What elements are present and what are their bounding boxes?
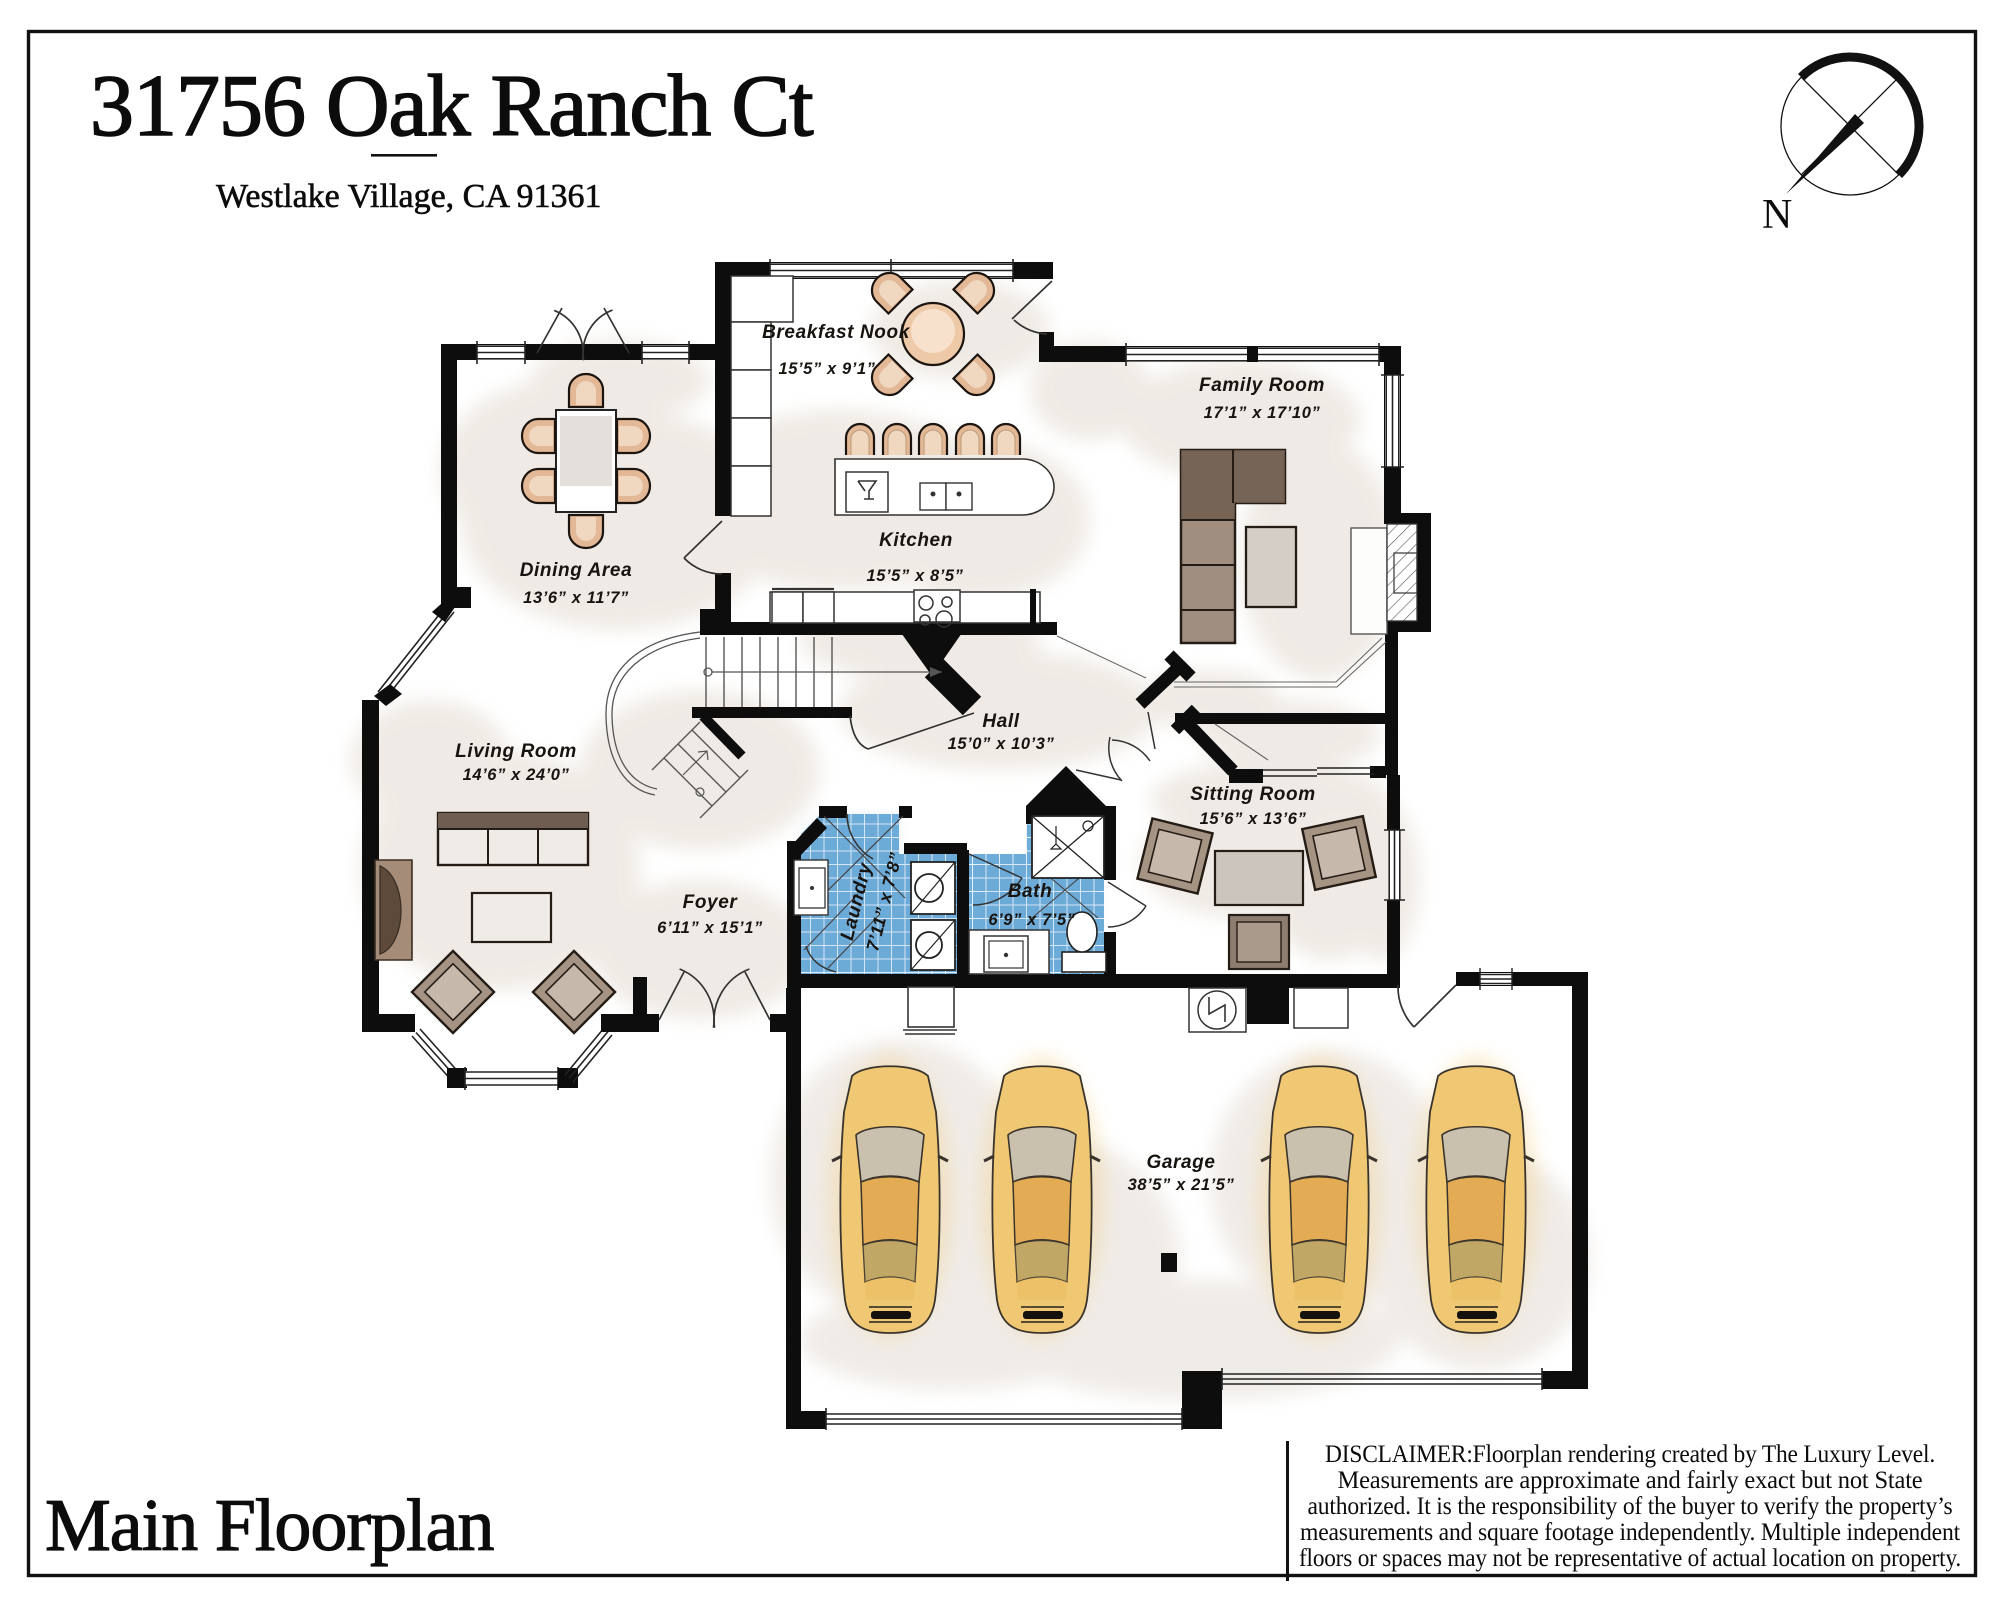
- svg-text:14’6” x 24’0”: 14’6” x 24’0”: [463, 766, 570, 784]
- svg-text:38’5” x 21’5”: 38’5” x 21’5”: [1128, 1176, 1235, 1194]
- svg-text:17’1” x 17’10”: 17’1” x 17’10”: [1204, 404, 1321, 422]
- svg-text:Westlake Village, CA 91361: Westlake Village, CA 91361: [216, 178, 602, 215]
- svg-text:15’0” x 10’3”: 15’0” x 10’3”: [948, 735, 1055, 753]
- svg-text:15’5” x 8’5”: 15’5” x 8’5”: [866, 567, 963, 585]
- svg-text:DISCLAIMER:Floorplan rendering: DISCLAIMER:Floorplan rendering created b…: [1325, 1439, 1935, 1468]
- svg-text:authorized. It is the responsi: authorized. It is the responsibility of …: [1308, 1491, 1953, 1520]
- svg-text:Measurements are approximate a: Measurements are approximate and fairly …: [1338, 1465, 1923, 1494]
- svg-text:Breakfast Nook: Breakfast Nook: [762, 322, 911, 343]
- svg-text:6’11” x 15’1”: 6’11” x 15’1”: [657, 919, 763, 937]
- svg-text:Kitchen: Kitchen: [879, 530, 953, 551]
- svg-text:Hall: Hall: [982, 711, 1019, 732]
- svg-text:6’9” x 7’5”: 6’9” x 7’5”: [988, 911, 1075, 929]
- svg-text:Main Floorplan: Main Floorplan: [45, 1485, 493, 1567]
- svg-text:Foyer: Foyer: [683, 892, 739, 913]
- svg-text:Living Room: Living Room: [455, 741, 577, 762]
- svg-text:Sitting Room: Sitting Room: [1190, 784, 1315, 805]
- svg-text:13’6” x 11’7”: 13’6” x 11’7”: [523, 589, 629, 607]
- svg-text:15’6” x 13’6”: 15’6” x 13’6”: [1200, 810, 1307, 828]
- svg-text:15’5” x 9’1”: 15’5” x 9’1”: [778, 360, 875, 378]
- svg-text:floors or spaces may not be re: floors or spaces may not be representati…: [1299, 1543, 1961, 1572]
- svg-text:Dining Area: Dining Area: [520, 560, 633, 581]
- svg-text:measurements and square footag: measurements and square footage independ…: [1300, 1517, 1960, 1546]
- svg-text:31756 Oak Ranch Ct: 31756 Oak Ranch Ct: [90, 58, 813, 155]
- svg-text:Garage: Garage: [1146, 1152, 1215, 1173]
- svg-text:Bath: Bath: [1008, 881, 1053, 902]
- svg-text:N: N: [1762, 192, 1792, 238]
- svg-text:Family Room: Family Room: [1199, 375, 1325, 396]
